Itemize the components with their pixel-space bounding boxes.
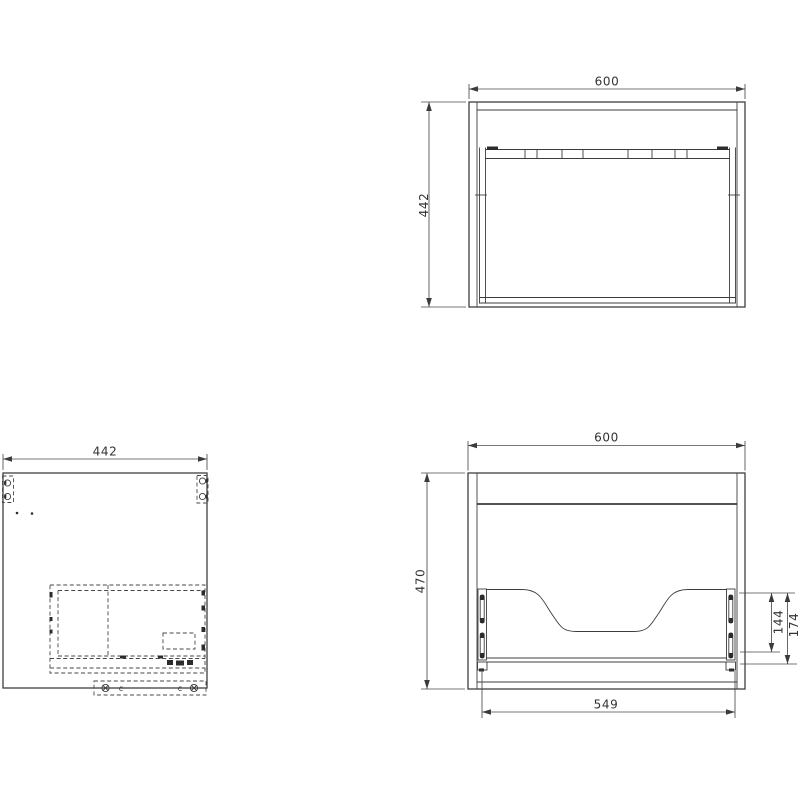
drawer-back-cutout [487,590,727,632]
slide-rail-left [478,589,488,672]
drill-dot [16,512,19,515]
dim-label-top-width: 600 [595,75,620,89]
screw-icon [199,493,205,499]
front-view: 600 470 144 174 [414,431,800,719]
dimension-drawer-width: 549 [482,668,735,718]
drawer-slide-hidden [50,585,206,673]
dim-label-front-height: 470 [414,569,428,594]
dim-label-back: 174 [787,613,800,638]
dimension-front-height: 470 [414,473,466,689]
rail-segment-dividers [525,150,687,159]
dimension-top-depth: 442 [417,102,466,307]
top-view: 600 442 [417,75,745,308]
corner-hook-left [487,147,498,151]
dimension-top-width: 600 [469,75,745,100]
mount-bracket-right [197,476,208,504]
slide-rail-right [726,589,736,672]
top-view-outline [469,102,745,307]
dim-label-drawer-width: 549 [594,698,619,712]
screw-icon [199,478,205,484]
technical-drawing-canvas: 600 442 442 [0,0,800,800]
dimension-slide-heights: 144 174 [739,593,800,664]
clip-label-right: c [178,684,182,693]
slide-block-hidden [163,633,195,649]
front-view-outline [468,473,745,689]
dimension-front-width: 600 [468,431,745,471]
clip-label-left: c [119,684,123,693]
cabinet-drawing-svg: 600 442 442 [0,0,800,800]
drill-dot [31,512,34,515]
dimension-side-depth: 442 [3,445,207,471]
dim-label-side-depth: 442 [93,445,118,459]
side-view: 442 [3,445,209,696]
drawer-box-top [476,147,740,304]
corner-hook-right [717,147,728,151]
dim-label-front-width: 600 [594,431,619,445]
dim-label-slide: 144 [772,610,786,635]
mount-bracket-left [3,476,14,503]
dim-label-top-depth: 442 [417,193,431,218]
